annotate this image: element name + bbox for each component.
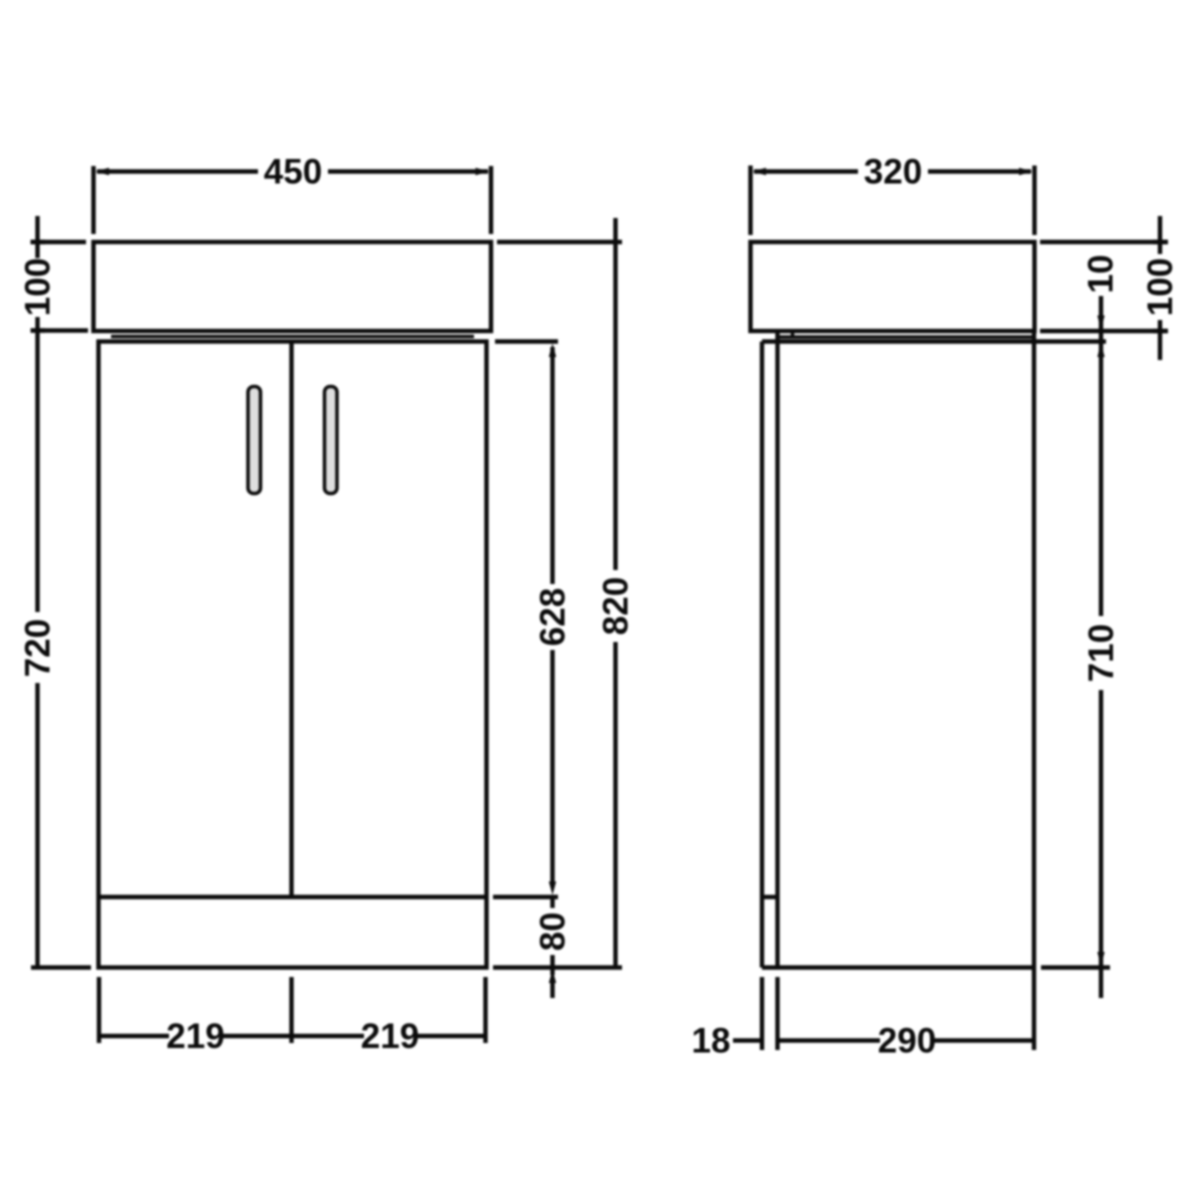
svg-text:710: 710 [1082,624,1121,682]
svg-text:100: 100 [1141,258,1180,316]
svg-text:450: 450 [264,153,322,192]
svg-text:219: 219 [166,1017,224,1056]
svg-text:18: 18 [692,1022,731,1061]
svg-text:80: 80 [534,912,573,951]
svg-text:290: 290 [878,1022,936,1061]
svg-text:100: 100 [19,258,58,316]
svg-text:320: 320 [864,153,922,192]
svg-text:628: 628 [534,588,573,646]
svg-text:820: 820 [597,577,636,635]
svg-text:219: 219 [361,1017,419,1056]
svg-text:720: 720 [19,619,58,677]
svg-text:10: 10 [1082,255,1121,294]
